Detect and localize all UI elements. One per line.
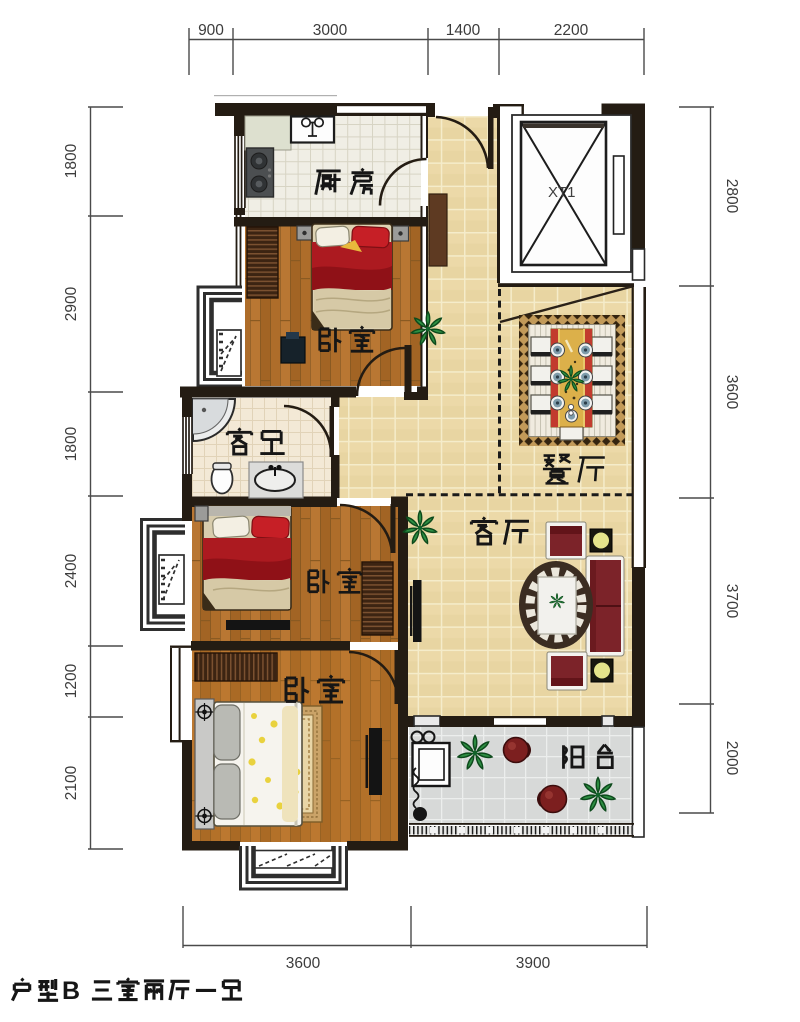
svg-text:B: B bbox=[62, 977, 80, 1005]
svg-text:2000: 2000 bbox=[723, 741, 740, 776]
svg-text:3700: 3700 bbox=[723, 584, 740, 619]
svg-text:900: 900 bbox=[198, 22, 224, 39]
svg-text:1800: 1800 bbox=[63, 426, 80, 461]
svg-text:1400: 1400 bbox=[446, 22, 481, 39]
svg-text:1800: 1800 bbox=[63, 143, 80, 178]
svg-text:2100: 2100 bbox=[63, 765, 80, 800]
svg-text:3000: 3000 bbox=[313, 22, 348, 39]
svg-text:1200: 1200 bbox=[63, 663, 80, 698]
svg-text:2400: 2400 bbox=[63, 553, 80, 588]
svg-text:3600: 3600 bbox=[723, 375, 740, 410]
svg-text:XT1: XT1 bbox=[548, 184, 576, 201]
svg-text:2800: 2800 bbox=[723, 179, 740, 214]
svg-text:2200: 2200 bbox=[554, 22, 589, 39]
svg-text:3900: 3900 bbox=[516, 955, 551, 972]
svg-text:2900: 2900 bbox=[63, 286, 80, 321]
svg-text:3600: 3600 bbox=[286, 955, 321, 972]
